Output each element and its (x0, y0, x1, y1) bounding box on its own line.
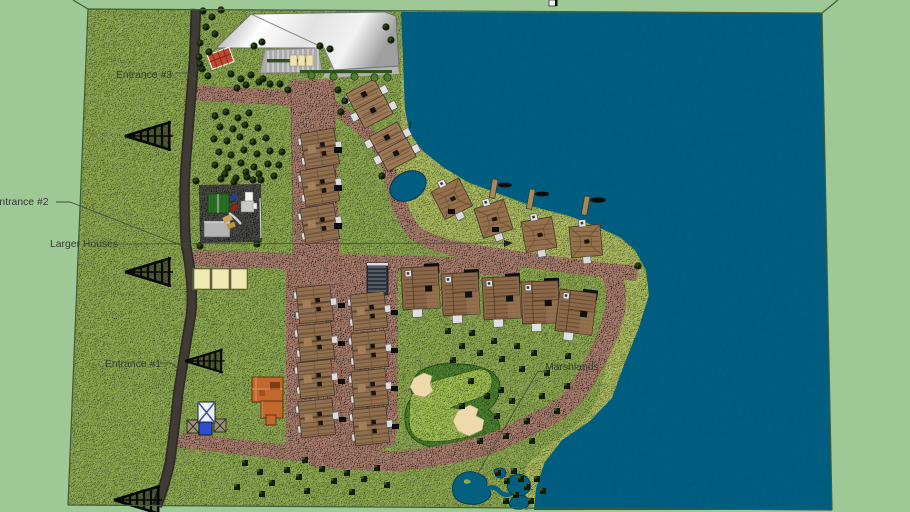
svg-text:Marshlands: Marshlands (545, 362, 599, 373)
svg-text:Larger Houses: Larger Houses (50, 239, 118, 250)
svg-text:Entrance #3: Entrance #3 (116, 70, 172, 81)
svg-text:Entrance #2: Entrance #2 (0, 197, 49, 208)
svg-text:Entrance #1: Entrance #1 (105, 359, 161, 370)
